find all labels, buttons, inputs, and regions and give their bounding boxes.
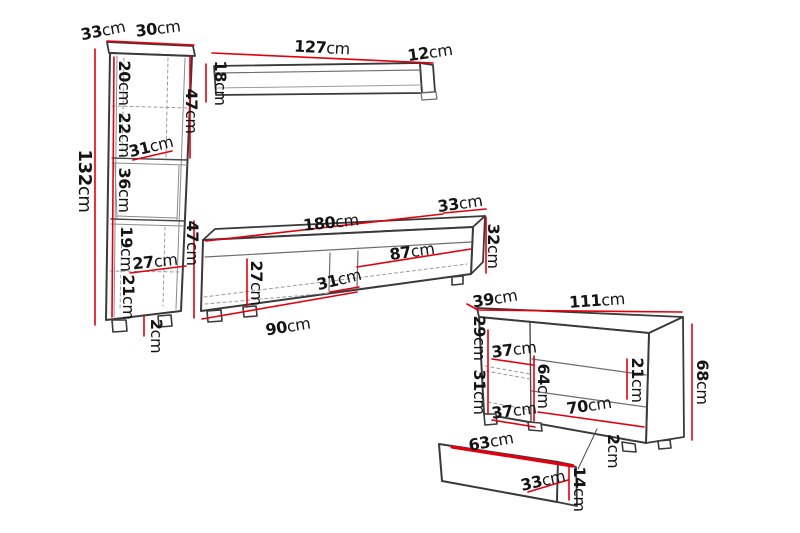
dim-shelf-height: 18cm (212, 60, 228, 105)
dim-cabinet-height: 132cm (75, 149, 93, 212)
dim-sideboard-lower-left: 31cm (471, 369, 487, 414)
dim-sideboard-upper-left: 29cm (471, 315, 487, 360)
dim-tvstand-height: 32cm (485, 223, 501, 268)
dim-cabinet-section3: 36cm (116, 167, 132, 212)
dim-shelf-width: 127cm (294, 39, 351, 58)
dim-cabinet-section4: 19cm (118, 226, 134, 271)
wall-shelf-drawing (214, 63, 437, 100)
dim-cabinet-section1: 20cm (116, 60, 132, 105)
dim-sideboard-plinth: 2cm (605, 434, 621, 468)
dim-cabinet-section5: 21cm (120, 274, 136, 319)
dim-tvstand-inner-height: 27cm (248, 260, 264, 305)
dim-sideboard-inner-height: 64cm (535, 363, 551, 408)
dim-cabinet-plinth: 2cm (148, 319, 164, 353)
dim-sideboard-height: 68cm (694, 359, 710, 404)
dim-drawer-height: 14cm (571, 466, 587, 511)
furniture-dimension-diagram: 33cm 30cm 132cm 20cm 22cm 31cm 36cm 19cm… (0, 0, 800, 533)
dim-cabinet-lower-door: 47cm (184, 220, 200, 265)
dim-sideboard-drawer-front: 21cm (629, 357, 645, 402)
dim-sideboard-width: 111cm (569, 291, 626, 311)
dim-cabinet-inner-width: 27cm (132, 252, 178, 273)
dim-cabinet-upper-door: 47cm (183, 88, 199, 133)
